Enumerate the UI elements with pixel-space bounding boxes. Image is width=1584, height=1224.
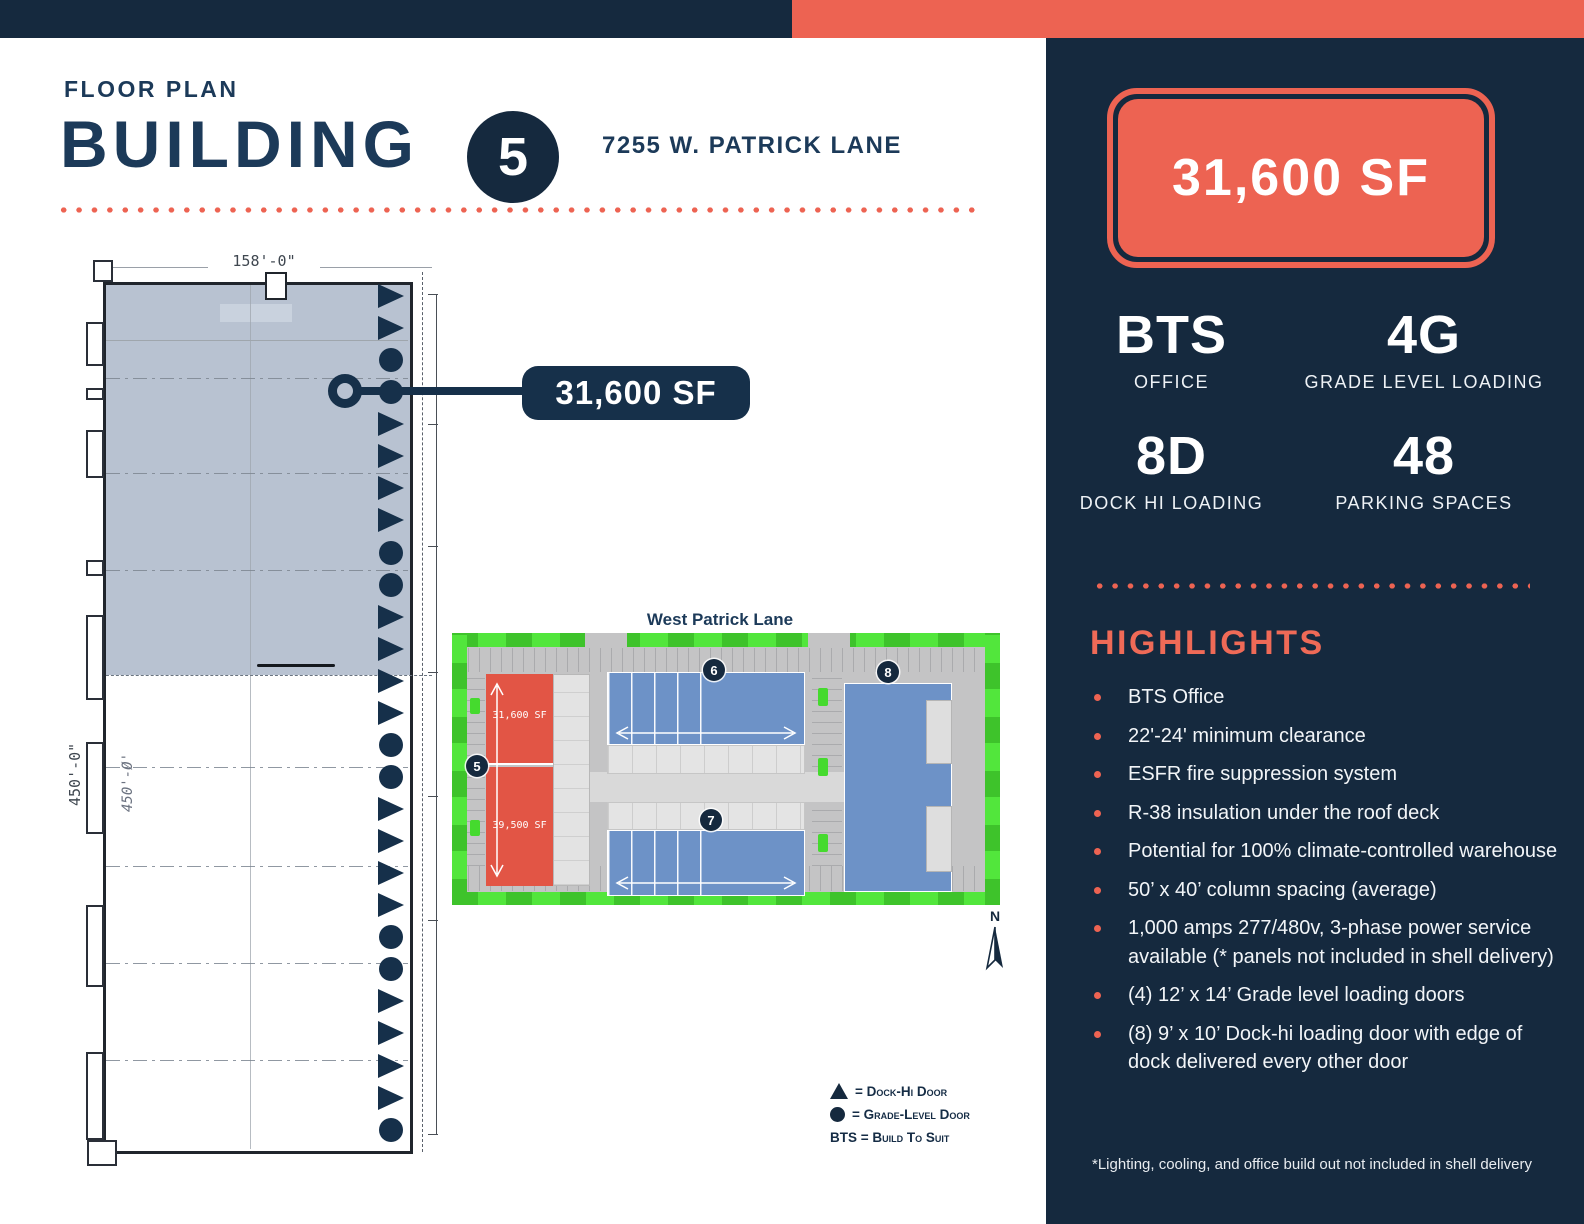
horizontal-dimension-arrow bbox=[615, 876, 797, 890]
bullet-icon bbox=[1094, 771, 1101, 778]
dimension-tick bbox=[428, 546, 438, 547]
grid-line bbox=[106, 570, 408, 571]
callout-leader-line bbox=[360, 387, 524, 395]
highlight-item: (4) 12’ x 14’ Grade level loading doors bbox=[1092, 981, 1570, 1010]
dimension-tick bbox=[428, 424, 438, 425]
legend: = Dock-Hi Door = Grade-Level Door BTS = … bbox=[830, 1083, 1060, 1153]
dock-hi-door-icon bbox=[378, 284, 404, 308]
grid-line bbox=[106, 963, 408, 964]
highlight-text: Potential for 100% climate-controlled wa… bbox=[1128, 840, 1557, 862]
building6-dock-apron bbox=[607, 745, 805, 774]
dock-hi-door-icon bbox=[378, 508, 404, 532]
wall-detail bbox=[86, 560, 104, 576]
horizontal-dimension-arrow bbox=[615, 726, 797, 740]
wall-detail bbox=[87, 1140, 117, 1166]
dimension-tick bbox=[428, 796, 438, 797]
wall-detail bbox=[86, 905, 104, 987]
stat-label: GRADE LEVEL LOADING bbox=[1279, 372, 1569, 393]
landscape-patch bbox=[818, 758, 828, 776]
stat-value: 4G bbox=[1279, 306, 1569, 364]
highlight-text: (4) 12’ x 14’ Grade level loading doors bbox=[1128, 984, 1464, 1006]
dock-hi-door-icon bbox=[378, 637, 404, 661]
highlights-title: HIGHLIGHTS bbox=[1090, 624, 1325, 663]
dock-hi-door-icon bbox=[378, 701, 404, 725]
bullet-icon bbox=[1094, 810, 1101, 817]
address-label: 7255 W. PATRICK LANE bbox=[602, 132, 902, 160]
highlight-text: 1,000 amps 277/480v, 3-phase power servi… bbox=[1128, 917, 1554, 968]
right-dashed-line bbox=[422, 272, 423, 1152]
available-area-shading bbox=[106, 285, 410, 675]
info-sidebar: 31,600 SF BTS OFFICE 4G GRADE LEVEL LOAD… bbox=[1046, 38, 1584, 1224]
landscaping-strip bbox=[452, 633, 1000, 647]
bullet-icon bbox=[1094, 848, 1101, 855]
highlight-item: 1,000 amps 277/480v, 3-phase power servi… bbox=[1092, 914, 1570, 971]
stat-value: 48 bbox=[1279, 427, 1569, 485]
grade-level-door-icon bbox=[379, 925, 403, 949]
street-label: West Patrick Lane bbox=[440, 610, 1000, 630]
dock-hi-door-icon bbox=[830, 1083, 848, 1099]
sf-callout-label: 31,600 SF bbox=[522, 366, 750, 420]
grade-level-door-icon bbox=[379, 573, 403, 597]
eyebrow-label: FLOOR PLAN bbox=[64, 76, 239, 103]
building8-badge: 8 bbox=[877, 661, 899, 683]
wall-detail bbox=[86, 430, 104, 478]
wall-detail bbox=[86, 1052, 104, 1140]
left-dimension-label: 450'-0" bbox=[66, 686, 84, 806]
building6-badge: 6 bbox=[703, 659, 725, 681]
dock-hi-door-icon bbox=[378, 476, 404, 500]
stat-value: BTS bbox=[1064, 306, 1279, 364]
dimension-tick bbox=[428, 294, 438, 295]
highlight-text: 50’ x 40’ column spacing (average) bbox=[1128, 879, 1437, 901]
entry-notch bbox=[265, 272, 287, 300]
landscape-patch bbox=[818, 834, 828, 852]
grid-line bbox=[106, 767, 408, 768]
callout-anchor-circle bbox=[328, 374, 362, 408]
parking-stalls bbox=[468, 648, 984, 672]
vertical-dimension-arrow bbox=[490, 682, 504, 878]
grade-level-door-icon bbox=[379, 1118, 403, 1142]
grid-line bbox=[106, 1060, 408, 1061]
stat-label: DOCK HI LOADING bbox=[1064, 493, 1279, 514]
highlight-item: 50’ x 40’ column spacing (average) bbox=[1092, 876, 1570, 905]
highlight-item: ESFR fire suppression system bbox=[1092, 760, 1570, 789]
highlight-text: 22'-24' minimum clearance bbox=[1128, 725, 1366, 747]
highlight-item: 22'-24' minimum clearance bbox=[1092, 722, 1570, 751]
stat-value: 8D bbox=[1064, 427, 1279, 485]
building5-badge: 5 bbox=[466, 755, 488, 777]
landscape-patch bbox=[470, 820, 480, 836]
stat-dock-loading: 8D DOCK HI LOADING bbox=[1064, 427, 1279, 514]
grid-line bbox=[106, 473, 408, 474]
dock-hi-door-icon bbox=[378, 989, 404, 1013]
page-title: BUILDING bbox=[60, 106, 419, 182]
stat-label: OFFICE bbox=[1064, 372, 1279, 393]
north-label: N bbox=[978, 908, 1012, 924]
highlights-list: BTS Office22'-24' minimum clearanceESFR … bbox=[1092, 683, 1570, 1087]
highlight-text: R-38 insulation under the roof deck bbox=[1128, 802, 1439, 824]
stat-grade-loading: 4G GRADE LEVEL LOADING bbox=[1279, 306, 1569, 393]
dock-hi-door-icon bbox=[378, 1021, 404, 1045]
grade-level-door-icon bbox=[379, 348, 403, 372]
dock-hi-door-icon bbox=[378, 1086, 404, 1110]
building-number: 5 bbox=[498, 126, 528, 188]
grade-level-door-icon bbox=[379, 733, 403, 757]
dock-hi-door-icon bbox=[378, 316, 404, 340]
wall-detail bbox=[86, 742, 104, 834]
landscape-patch bbox=[470, 698, 480, 714]
highlight-text: ESFR fire suppression system bbox=[1128, 763, 1397, 785]
left-dimension-label-alt: 450'-Ø' bbox=[120, 692, 136, 812]
highlight-item: R-38 insulation under the roof deck bbox=[1092, 799, 1570, 828]
bullet-icon bbox=[1094, 694, 1101, 701]
highlight-item: BTS Office bbox=[1092, 683, 1570, 712]
legend-bts-text: BTS = Build To Suit bbox=[830, 1130, 949, 1145]
top-bar-coral bbox=[792, 0, 1584, 38]
top-bar-navy bbox=[0, 0, 792, 38]
loading-door-column bbox=[378, 284, 406, 1142]
building-number-badge: 5 bbox=[467, 111, 559, 203]
dimension-tick bbox=[428, 1134, 438, 1135]
top-dimension-label: 158'-0" bbox=[208, 252, 320, 270]
legend-bts-row: BTS = Build To Suit bbox=[830, 1130, 1060, 1145]
dimension-tick bbox=[428, 920, 438, 921]
flyer-page: FLOOR PLAN BUILDING 5 7255 W. PATRICK LA… bbox=[0, 0, 1584, 1224]
wall-segment bbox=[257, 664, 335, 667]
legend-dock-text: = Dock-Hi Door bbox=[855, 1084, 947, 1099]
landscaping-strip bbox=[985, 633, 1000, 905]
stat-label: PARKING SPACES bbox=[1279, 493, 1569, 514]
wall-detail bbox=[86, 615, 104, 700]
driveway-entrance bbox=[585, 633, 627, 647]
highlight-text: BTS Office bbox=[1128, 686, 1224, 708]
landscape-patch bbox=[818, 688, 828, 706]
compass-needle-icon bbox=[982, 924, 1008, 972]
dock-hi-door-icon bbox=[378, 669, 404, 693]
highlight-item: (8) 9’ x 10’ Dock-hi loading door with e… bbox=[1092, 1020, 1570, 1077]
footnote: *Lighting, cooling, and office build out… bbox=[1092, 1156, 1562, 1173]
grade-level-door-icon bbox=[379, 541, 403, 565]
right-dimension-bracket bbox=[436, 294, 437, 1134]
dock-hi-door-icon bbox=[378, 797, 404, 821]
highlight-item: Potential for 100% climate-controlled wa… bbox=[1092, 837, 1570, 866]
bullet-icon bbox=[1094, 1031, 1101, 1038]
stats-grid: BTS OFFICE 4G GRADE LEVEL LOADING 8D DOC… bbox=[1064, 306, 1569, 514]
building7-badge: 7 bbox=[700, 809, 722, 831]
grade-level-door-icon bbox=[830, 1107, 845, 1122]
landscaping-strip bbox=[452, 633, 467, 905]
dock-hi-door-icon bbox=[378, 861, 404, 885]
dock-hi-door-icon bbox=[378, 829, 404, 853]
dock-hi-door-icon bbox=[378, 444, 404, 468]
dock-hi-door-icon bbox=[378, 893, 404, 917]
dimension-tick bbox=[428, 672, 438, 673]
stat-parking: 48 PARKING SPACES bbox=[1279, 427, 1569, 514]
bullet-icon bbox=[1094, 733, 1101, 740]
bullet-icon bbox=[1094, 887, 1101, 894]
grade-level-door-icon bbox=[379, 957, 403, 981]
floor-plan-drawing: 158'-0" bbox=[60, 248, 490, 1168]
column-line bbox=[250, 285, 251, 1149]
legend-grade-row: = Grade-Level Door bbox=[830, 1107, 1060, 1122]
highlight-text: (8) 9’ x 10’ Dock-hi loading door with e… bbox=[1128, 1023, 1522, 1074]
grid-line bbox=[106, 866, 408, 867]
drive-aisle bbox=[590, 772, 846, 802]
grade-level-door-icon bbox=[379, 765, 403, 789]
legend-grade-text: = Grade-Level Door bbox=[852, 1107, 970, 1122]
bullet-icon bbox=[1094, 992, 1101, 999]
dock-hi-door-icon bbox=[378, 605, 404, 629]
grid-line bbox=[106, 340, 408, 341]
driveway-entrance bbox=[808, 633, 850, 647]
square-footage-badge: 31,600 SF bbox=[1107, 88, 1495, 268]
grid-line bbox=[106, 378, 408, 379]
dotted-separator bbox=[1092, 580, 1530, 592]
dotted-separator bbox=[56, 203, 980, 217]
bullet-icon bbox=[1094, 925, 1101, 932]
north-arrow: N bbox=[978, 908, 1012, 977]
dock-hi-door-icon bbox=[378, 1054, 404, 1078]
square-footage-value: 31,600 SF bbox=[1118, 99, 1484, 257]
wall-detail bbox=[86, 388, 104, 400]
legend-dock-row: = Dock-Hi Door bbox=[830, 1083, 1060, 1099]
office-area bbox=[220, 304, 292, 322]
stat-office: BTS OFFICE bbox=[1064, 306, 1279, 393]
dock-hi-door-icon bbox=[378, 412, 404, 436]
wall-notch bbox=[93, 260, 113, 282]
building8-notch bbox=[926, 700, 952, 764]
building8-notch bbox=[926, 806, 952, 872]
wall-detail bbox=[86, 322, 104, 366]
building5-office-strip bbox=[553, 674, 590, 886]
